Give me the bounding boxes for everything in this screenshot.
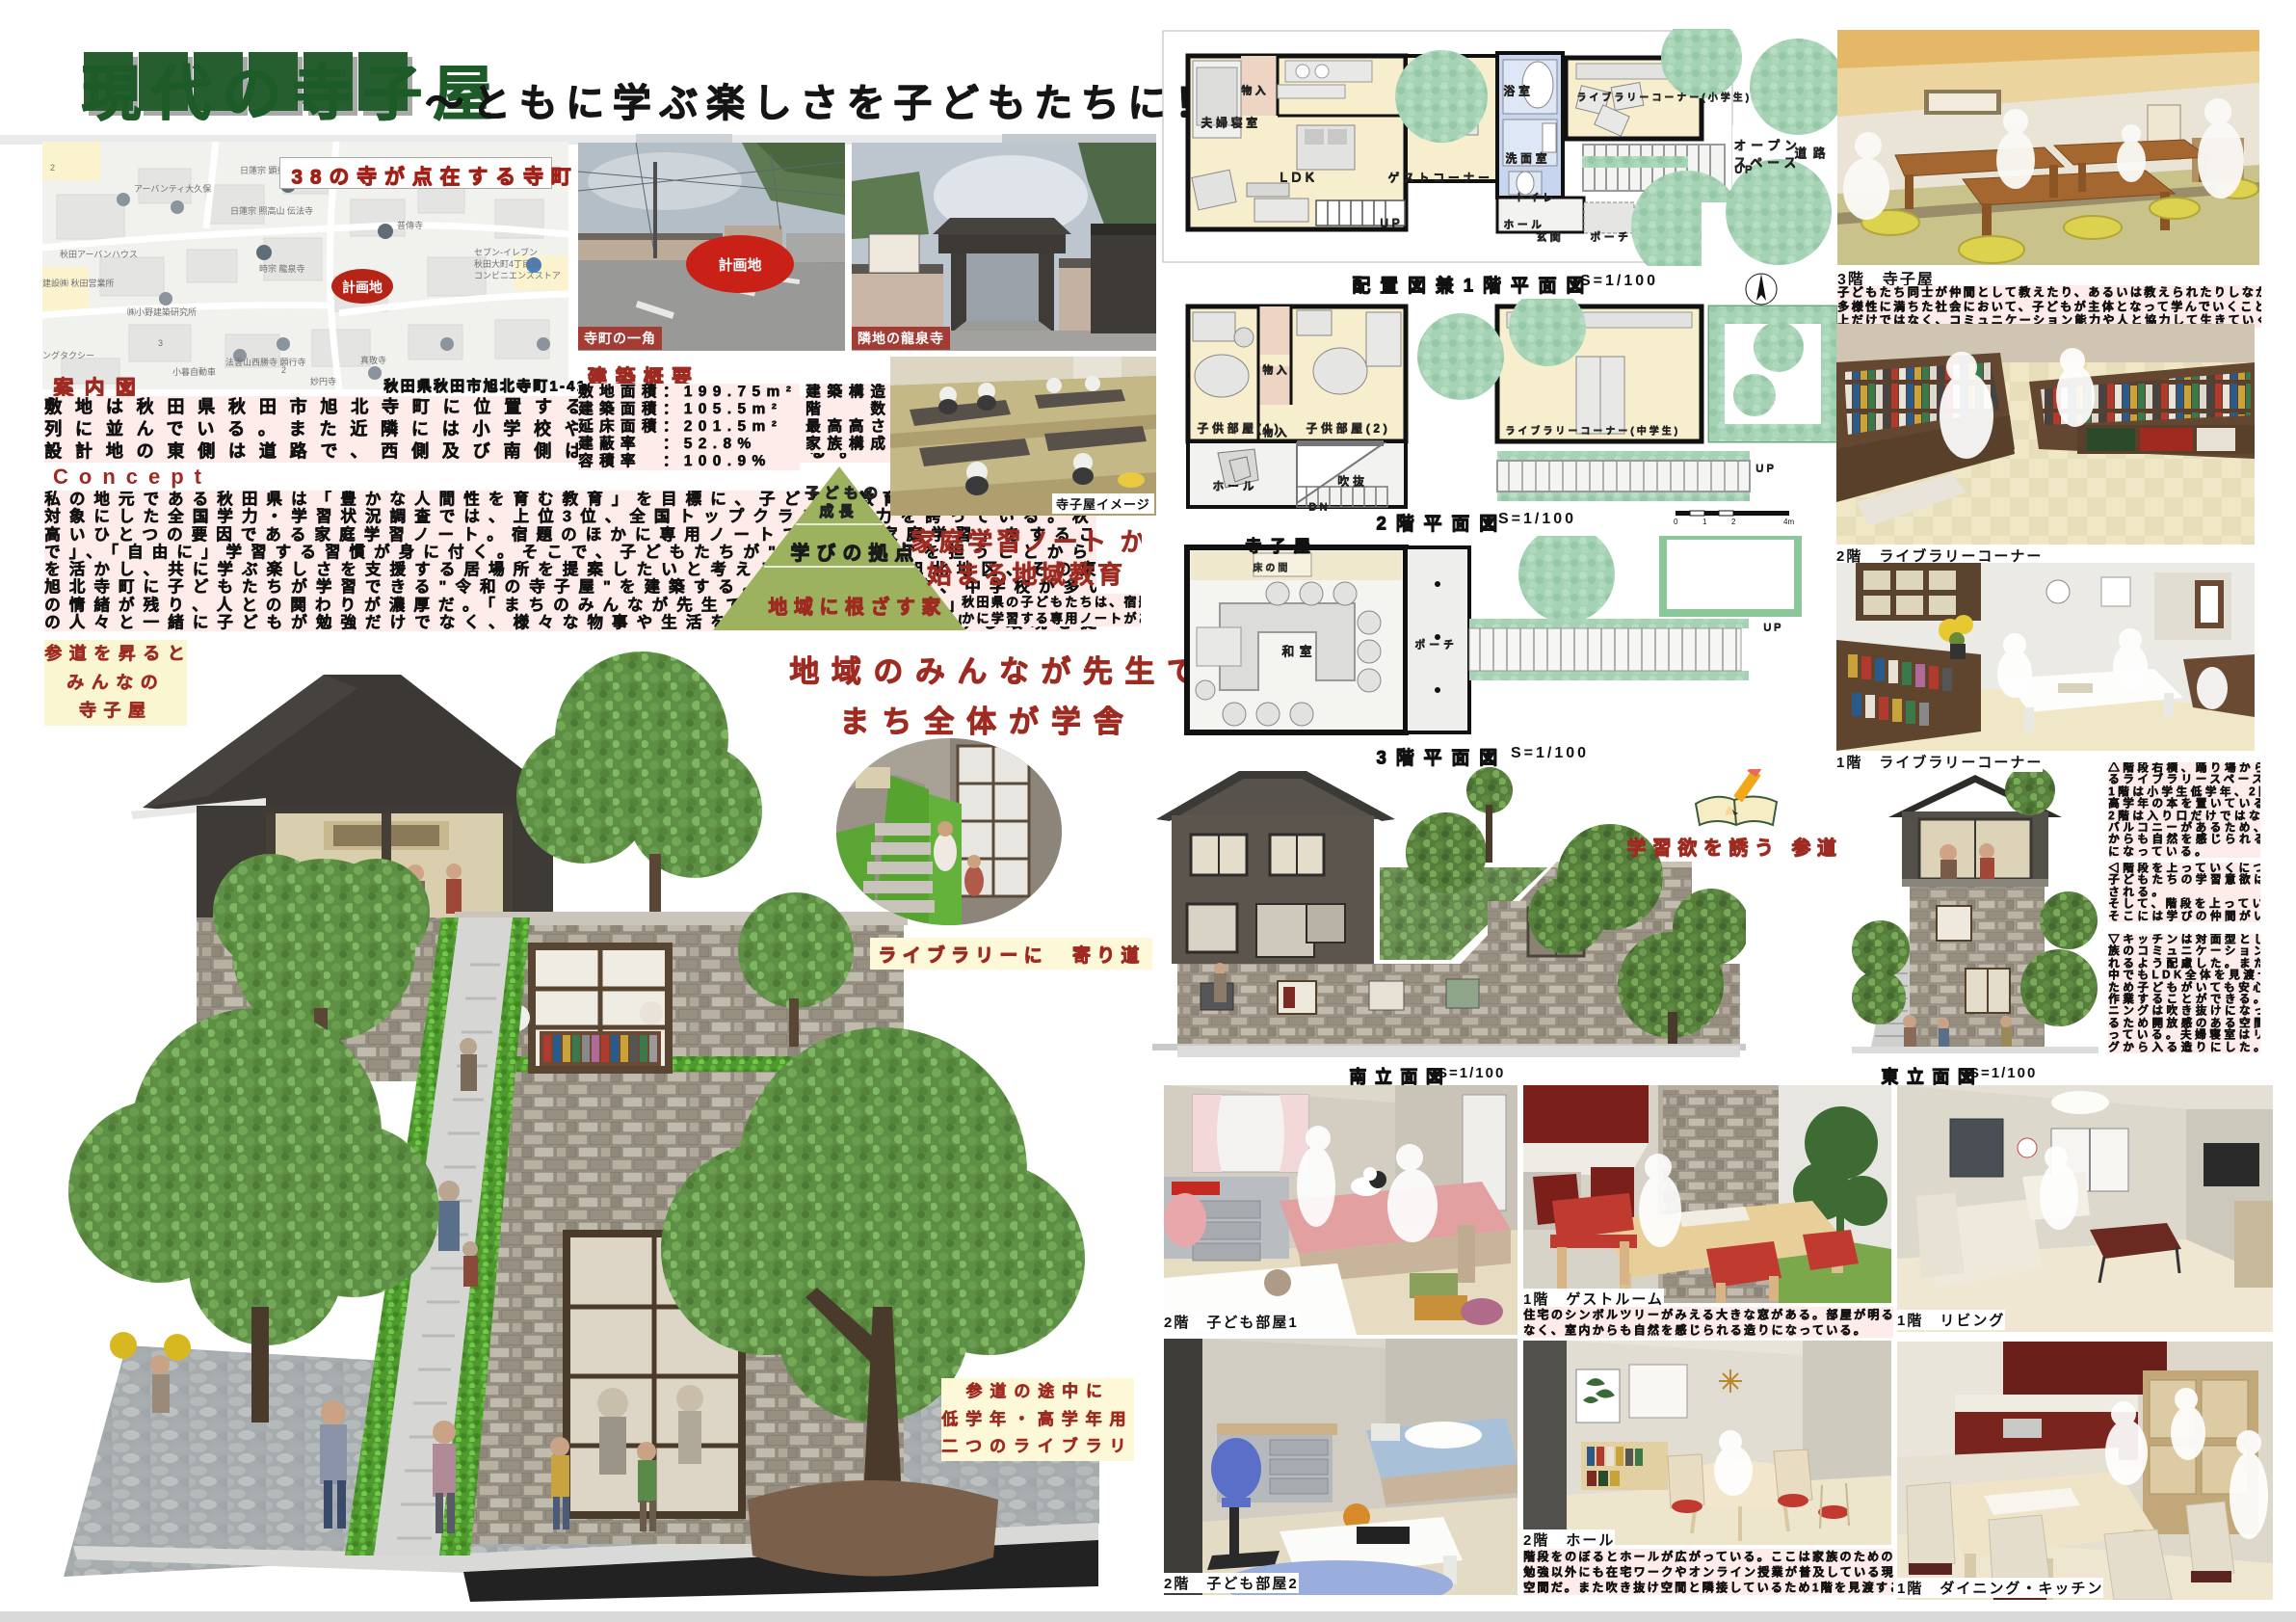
svg-text:3: 3	[158, 338, 163, 348]
svg-text:2: 2	[50, 163, 55, 173]
svg-text:真敬寺: 真敬寺	[360, 355, 386, 365]
svg-text:秋田アーバンハウス: 秋田アーバンハウス	[60, 249, 138, 259]
svg-text:2: 2	[281, 365, 286, 375]
svg-text:秋田大町4丁目店: 秋田大町4丁目店	[474, 258, 540, 269]
svg-text:1: 1	[1702, 518, 1707, 525]
svg-text:時宗 龍泉寺: 時宗 龍泉寺	[259, 263, 305, 274]
svg-text:アーバンティ大久保: アーバンティ大久保	[134, 183, 211, 194]
svg-text:計画地: 計画地	[718, 256, 761, 274]
svg-text:4m: 4m	[1783, 518, 1794, 525]
svg-text:小暮自動車: 小暮自動車	[172, 366, 216, 377]
svg-text:2: 2	[1731, 518, 1736, 525]
svg-text:普傳寺: 普傳寺	[397, 220, 423, 230]
svg-text:コンビニエンスストア: コンビニエンスストア	[474, 271, 561, 280]
svg-text:セブン-イレブン: セブン-イレブン	[474, 247, 538, 257]
svg-text:法雲山西勝寺 願行寺: 法雲山西勝寺 願行寺	[225, 357, 306, 367]
svg-text:妙円寺: 妙円寺	[310, 376, 336, 386]
svg-text:0: 0	[1674, 518, 1678, 525]
svg-text:ングタクシー: ングタクシー	[42, 350, 94, 360]
svg-text:建設㈱ 秋田営業所: 建設㈱ 秋田営業所	[42, 278, 115, 288]
svg-text:㈱小野建築研究所: ㈱小野建築研究所	[127, 306, 197, 317]
svg-text:日蓮宗 照高山 伝法寺: 日蓮宗 照高山 伝法寺	[230, 205, 313, 216]
svg-text:計画地: 計画地	[342, 279, 383, 295]
